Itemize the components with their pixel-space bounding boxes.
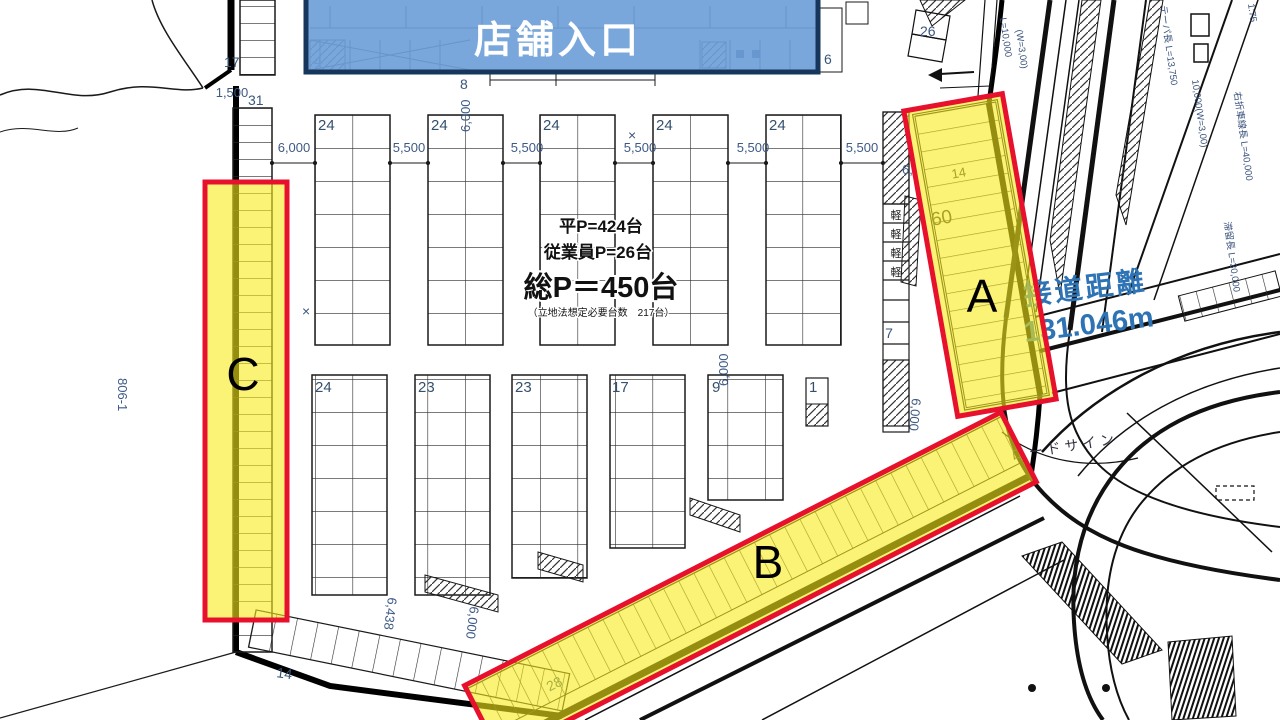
count-14-bottom: 14 [276,664,294,682]
upper-count-4: 24 [656,117,673,134]
kei-label-3: 軽 [891,247,902,260]
road-label-storage: 滞留長 L=30,000 [1221,221,1243,293]
dim-6000-v1: 6,000 [458,99,473,132]
dim-6438: 6,438 [381,597,400,631]
count-31: 31 [248,92,264,108]
x-mark-1: × [628,127,636,143]
left-arrow-icon [928,68,974,82]
count-26: 26 [920,23,936,39]
store-count-8: 8 [460,76,468,92]
store-count-6: 6 [824,51,832,67]
dim-6000-v2: 6,000 [716,353,731,386]
road-label-w3: (W=3,00) [1013,29,1029,69]
kei-label-4: 軽 [891,266,902,279]
dim-5500-2: 5,500 [511,140,544,155]
lower-count-4: 17 [612,379,629,396]
zone-c-highlight[interactable]: C [205,182,287,620]
parcel-number: 806-1 [115,378,130,411]
dim-6000-v3: 6,000 [463,606,482,640]
dim-5500-1: 5,500 [393,140,426,155]
topleft-roads [0,0,236,718]
zone-a-highlight[interactable]: A [904,94,1056,417]
summary-note: （立地法想定必要台数 217台） [528,306,675,319]
summary-flat: 平P=424台 [559,216,643,236]
summary-total: 総P＝450台 [524,270,679,304]
dim-1500: 1,500 [216,85,249,100]
zone-b-letter: B [753,536,784,588]
zone-c-box[interactable] [205,182,287,620]
count-17: 17 [224,54,240,70]
dim-6000-v4: 6,000 [906,398,924,432]
lower-count-6: 1 [809,379,817,396]
road-label-ratio: 1:75 [1245,3,1258,23]
x-mark-2: × [302,303,310,319]
zone-a-box[interactable] [904,94,1056,417]
lower-count-3: 23 [515,379,532,396]
parking-site-plan: 28 60 14 [0,0,1280,720]
upper-count-5: 24 [769,117,786,134]
store-entrance-label: 店舗入口 [474,20,642,62]
dim-5500-4: 5,500 [737,140,770,155]
kei-label-1: 軽 [891,209,902,222]
dim-6000: 6,000 [278,140,311,155]
upper-count-3: 24 [543,117,560,134]
site-plan-drawing: 28 60 14 [0,0,1280,720]
lower-count-2: 23 [418,379,435,396]
road-label-right-turn: 右折車線長 L=40,000 [1231,91,1255,182]
zone-c-letter: C [226,348,259,400]
dim-5500-5: 5,500 [846,140,879,155]
store-entrance-highlight[interactable]: 店舗入口 [306,0,818,72]
zone-a-letter: A [967,270,998,322]
upper-count-2: 24 [431,117,448,134]
kei-label-2: 軽 [891,228,902,241]
lower-count-1: 24 [315,379,332,396]
summary-staff: 従業員P=26台 [543,242,652,262]
upper-count-1: 24 [318,117,335,134]
road-label-taper: テーパ長 L=13,750 [1157,5,1179,86]
count-7: 7 [885,325,893,341]
